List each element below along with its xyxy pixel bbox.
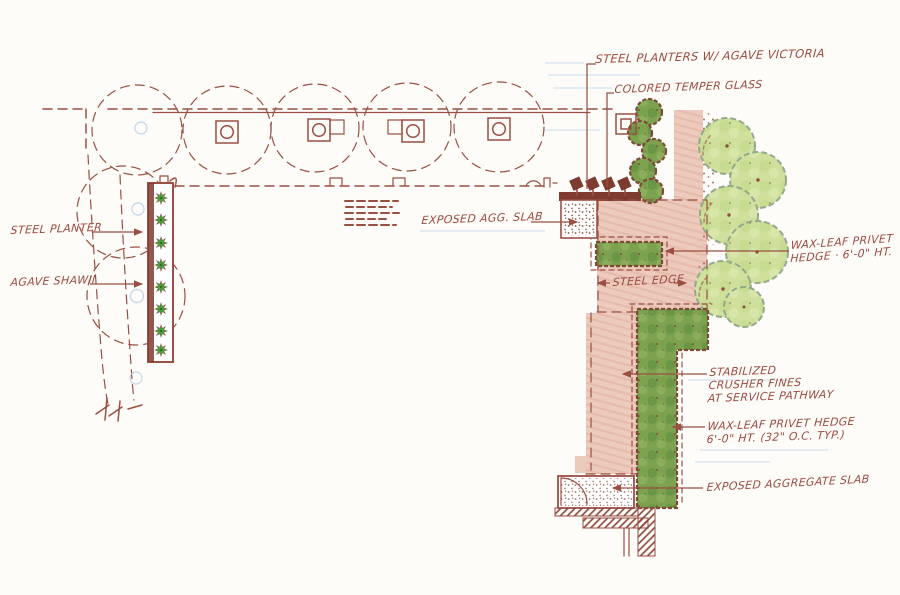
privet-hedge-L (630, 304, 712, 510)
exposed-agg-slab-top (561, 200, 597, 238)
leader-colored-glass (607, 93, 614, 187)
pot-planter (402, 120, 424, 142)
agave-plant (154, 191, 168, 205)
tree-canopy-group (695, 118, 788, 327)
pot-planter (216, 121, 238, 143)
pot-planter (308, 119, 330, 141)
steel-planter-left (148, 178, 176, 362)
tree-pot-planters (216, 114, 636, 143)
agave-plant (154, 324, 168, 338)
landscape-plan-sketch: STEEL PLANTERS W/ AGAVE VICTORIA COLORED… (0, 0, 900, 595)
leader-steel-planters (587, 64, 596, 189)
agave-plant (154, 280, 168, 294)
wall-hatch (555, 508, 655, 556)
break-mark (96, 398, 142, 421)
boundary-curves (88, 155, 142, 421)
stair-hatch (345, 201, 399, 225)
agave-plant (154, 258, 168, 272)
annotation-privet-hedge-lower: WAX-LEAF PRIVET HEDGE 6'-0" HT. (32" O.C… (706, 415, 855, 446)
agave-plant (154, 236, 168, 250)
agave-plant (154, 213, 168, 227)
exposed-aggregate-slab-bottom (558, 476, 634, 508)
agave-plant (154, 302, 168, 316)
pot-planter (488, 118, 510, 140)
steel-planters-row (559, 176, 641, 201)
plan-drawing (0, 0, 900, 595)
agave-plant (154, 343, 168, 357)
annotation-crusher-fines: STABILIZED CRUSHER FINES AT SERVICE PATH… (707, 362, 836, 406)
